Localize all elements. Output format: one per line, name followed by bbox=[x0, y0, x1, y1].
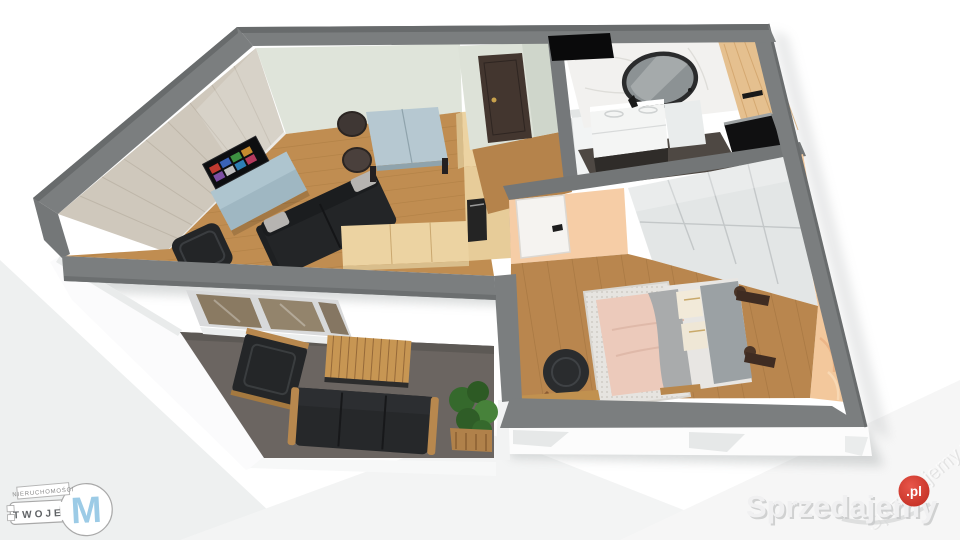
kitchen-counter-bottom bbox=[341, 221, 469, 266]
bath-half-wall bbox=[664, 100, 706, 148]
dining-chair bbox=[338, 112, 366, 136]
logo-monogram: M bbox=[70, 489, 103, 532]
door-handle bbox=[492, 98, 497, 103]
wall-vent bbox=[548, 33, 614, 61]
bedroom-armchair bbox=[543, 349, 589, 395]
dining-chair bbox=[343, 148, 371, 172]
brand-tld-text: .pl bbox=[906, 484, 922, 499]
pillow bbox=[676, 289, 703, 319]
vanity-sink bbox=[590, 95, 668, 172]
outdoor-sofa bbox=[287, 387, 439, 455]
pillow bbox=[681, 321, 708, 351]
floorplan-render: Sprzedajemy.pl Sprzedajemy.pl Sprzedajem… bbox=[0, 0, 960, 540]
floorplan-svg: Sprzedajemy.pl Sprzedajemy.pl Sprzedajem… bbox=[0, 0, 960, 540]
coffee-table bbox=[324, 335, 411, 388]
